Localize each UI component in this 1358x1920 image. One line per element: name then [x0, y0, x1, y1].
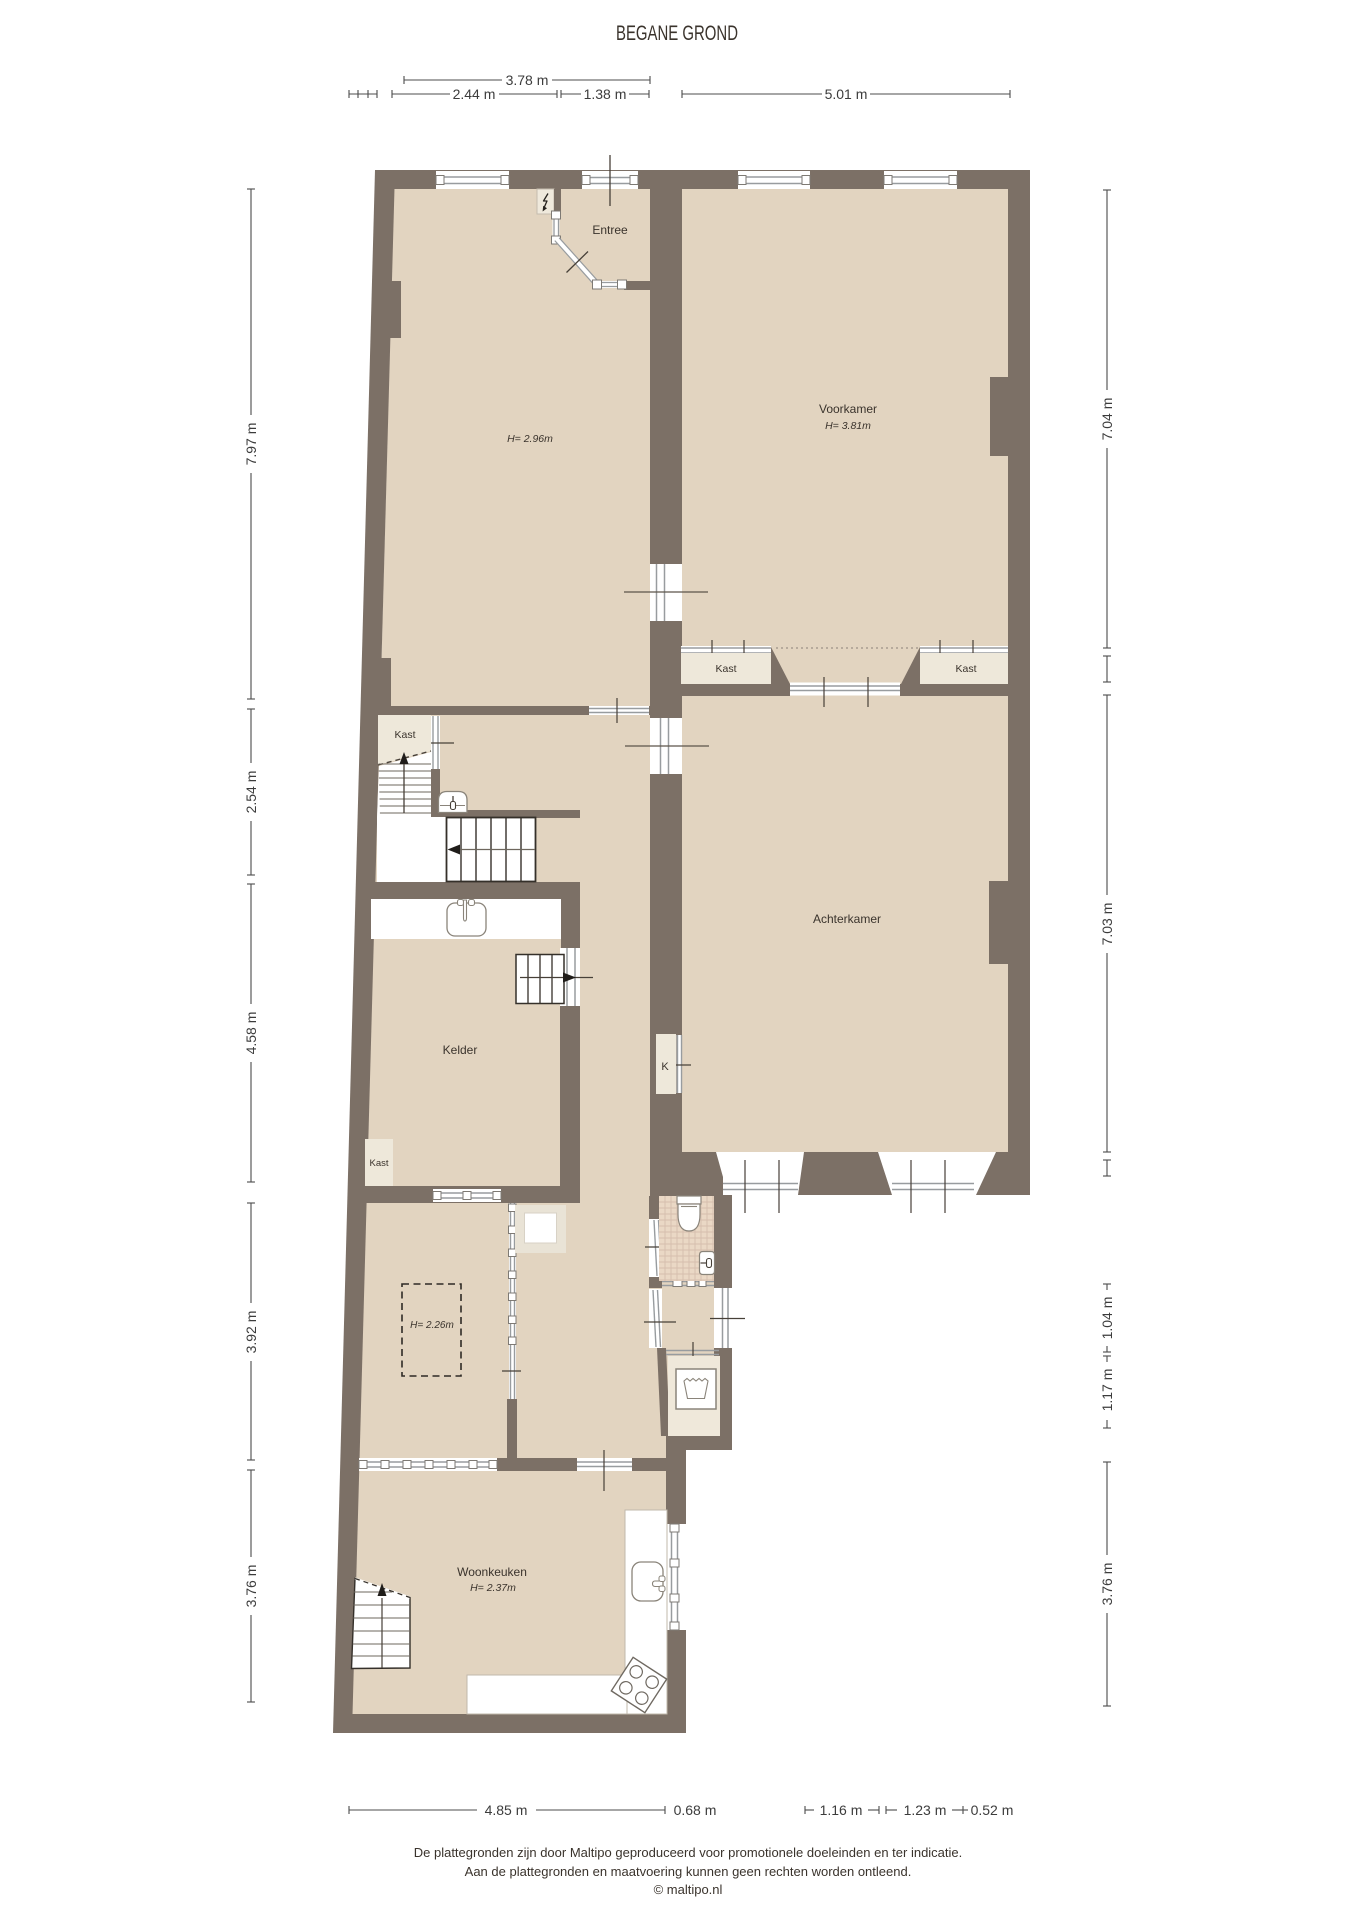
svg-text:Achterkamer: Achterkamer	[813, 912, 881, 926]
svg-text:3.92 m: 3.92 m	[243, 1311, 259, 1354]
svg-text:1.17 m: 1.17 m	[1099, 1369, 1115, 1412]
svg-text:0.52 m: 0.52 m	[971, 1802, 1014, 1818]
svg-text:De plattegronden zijn door Mal: De plattegronden zijn door Maltipo gepro…	[414, 1845, 963, 1860]
svg-text:3.78 m: 3.78 m	[506, 72, 549, 88]
svg-text:0.68 m: 0.68 m	[674, 1802, 717, 1818]
svg-text:H= 3.81m: H= 3.81m	[825, 420, 871, 432]
svg-text:5.01 m: 5.01 m	[825, 86, 868, 102]
svg-text:Woonkeuken: Woonkeuken	[457, 1565, 527, 1579]
svg-text:H= 2.96m: H= 2.96m	[507, 433, 553, 445]
svg-text:3.76 m: 3.76 m	[1099, 1563, 1115, 1606]
svg-text:Kast: Kast	[955, 663, 976, 675]
svg-text:1.38 m: 1.38 m	[584, 86, 627, 102]
svg-text:4.85 m: 4.85 m	[485, 1802, 528, 1818]
svg-text:H= 2.26m: H= 2.26m	[410, 1320, 454, 1331]
svg-text:3.76 m: 3.76 m	[243, 1565, 259, 1608]
svg-text:1.23 m: 1.23 m	[904, 1802, 947, 1818]
svg-text:H= 2.37m: H= 2.37m	[470, 1582, 516, 1594]
svg-text:1.04 m: 1.04 m	[1099, 1297, 1115, 1340]
svg-text:Kast: Kast	[715, 663, 736, 675]
svg-text:Voorkamer: Voorkamer	[819, 402, 877, 416]
svg-text:K: K	[661, 1061, 669, 1073]
svg-text:BEGANE GROND: BEGANE GROND	[616, 21, 738, 45]
svg-text:7.97 m: 7.97 m	[243, 423, 259, 466]
svg-text:Aan de plattegronden en maatvo: Aan de plattegronden en maatvoering kunn…	[465, 1864, 912, 1879]
svg-text:© maltipo.nl: © maltipo.nl	[654, 1882, 723, 1897]
svg-text:7.03 m: 7.03 m	[1099, 903, 1115, 946]
svg-text:Kelder: Kelder	[443, 1043, 478, 1057]
svg-text:1.16 m: 1.16 m	[820, 1802, 863, 1818]
svg-text:Kast: Kast	[394, 729, 415, 741]
svg-text:2.44 m: 2.44 m	[453, 86, 496, 102]
svg-text:Entree: Entree	[592, 223, 628, 237]
svg-text:7.04 m: 7.04 m	[1099, 398, 1115, 441]
svg-text:4.58 m: 4.58 m	[243, 1012, 259, 1055]
svg-text:2.54 m: 2.54 m	[243, 771, 259, 814]
svg-text:Kast: Kast	[369, 1158, 388, 1169]
